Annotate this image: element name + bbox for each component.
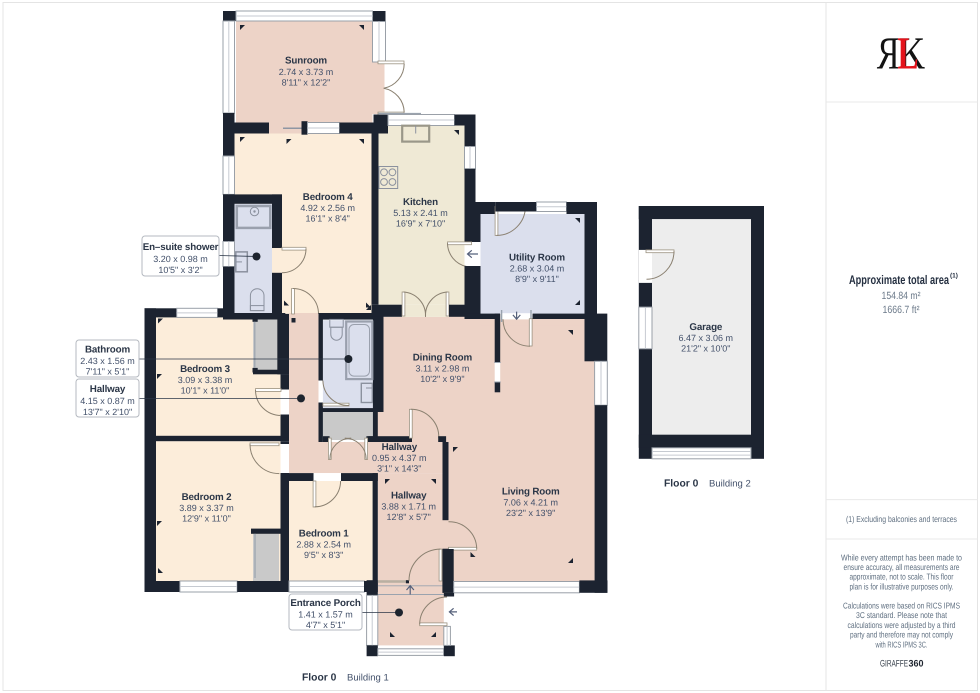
svg-text:Calculations were based on RIC: Calculations were based on RICS IPMS: [843, 601, 960, 611]
svg-text:ensure accuracy, all measureme: ensure accuracy, all measurements are: [844, 562, 960, 572]
svg-text:16'9" x 7'10": 16'9" x 7'10": [396, 219, 445, 229]
svg-text:GIRAFFE: GIRAFFE: [880, 659, 908, 670]
svg-text:Hallway: Hallway: [90, 384, 126, 395]
svg-text:Bedroom 3: Bedroom 3: [180, 364, 231, 375]
svg-text:0.95 x 4.37 m: 0.95 x 4.37 m: [372, 453, 427, 463]
svg-text:Garage: Garage: [689, 322, 723, 333]
svg-text:10'1" x 11'0": 10'1" x 11'0": [181, 386, 230, 396]
svg-text:Living Room: Living Room: [502, 487, 560, 498]
svg-text:Bedroom 1: Bedroom 1: [299, 528, 350, 539]
svg-text:4.92 x 2.56 m: 4.92 x 2.56 m: [300, 203, 355, 213]
svg-text:3.11 x 2.98 m: 3.11 x 2.98 m: [415, 364, 469, 374]
svg-text:Building 2: Building 2: [709, 479, 751, 490]
svg-text:Entrance Porch: Entrance Porch: [290, 598, 360, 609]
svg-text:2.43 x 1.56 m: 2.43 x 1.56 m: [80, 356, 135, 366]
svg-text:Bathroom: Bathroom: [85, 345, 131, 356]
svg-text:Hallway: Hallway: [391, 491, 427, 502]
svg-text:13'7" x 2'10": 13'7" x 2'10": [83, 407, 132, 417]
svg-text:12'8" x 5'7": 12'8" x 5'7": [387, 512, 431, 522]
svg-text:Building 1: Building 1: [347, 673, 389, 684]
svg-text:8'9" x 9'11": 8'9" x 9'11": [515, 274, 559, 284]
svg-text:7.06 x 4.21 m: 7.06 x 4.21 m: [503, 498, 558, 508]
svg-text:6.47 x 3.06 m: 6.47 x 3.06 m: [679, 333, 734, 343]
svg-text:While every attempt has been m: While every attempt has been made to: [841, 553, 962, 563]
svg-text:5.13 x 2.41 m: 5.13 x 2.41 m: [393, 208, 448, 218]
svg-text:(1) Excluding balconies and te: (1) Excluding balconies and terraces: [846, 514, 957, 524]
svg-text:En–suite shower: En–suite shower: [143, 242, 219, 253]
svg-text:4.15 x 0.87 m: 4.15 x 0.87 m: [80, 396, 135, 406]
svg-text:Utility Room: Utility Room: [509, 253, 565, 264]
svg-text:(1): (1): [950, 273, 958, 280]
svg-text:4'7" x 5'1": 4'7" x 5'1": [306, 620, 345, 630]
svg-text:3C standard. Please note that: 3C standard. Please note that: [856, 610, 948, 620]
svg-text:2.74 x 3.73 m: 2.74 x 3.73 m: [279, 67, 334, 77]
svg-text:360: 360: [909, 659, 924, 670]
svg-text:plan is for illustrative purpo: plan is for illustrative purposes only.: [850, 581, 954, 591]
svg-text:7'11" x 5'1": 7'11" x 5'1": [86, 367, 130, 377]
svg-text:approximate, not to scale. Thi: approximate, not to scale. This floor: [850, 572, 954, 582]
svg-text:16'1" x 8'4": 16'1" x 8'4": [306, 214, 350, 224]
svg-text:3.09 x 3.38 m: 3.09 x 3.38 m: [178, 375, 233, 385]
svg-text:10'2" x 9'9": 10'2" x 9'9": [420, 374, 464, 384]
svg-text:1666.7 ft²: 1666.7 ft²: [883, 304, 920, 316]
svg-text:Floor 0: Floor 0: [302, 673, 337, 684]
svg-text:with RICS IPMS 3C.: with RICS IPMS 3C.: [875, 639, 928, 649]
svg-text:3'1" x 14'3": 3'1" x 14'3": [377, 463, 421, 473]
svg-text:23'2" x 13'9": 23'2" x 13'9": [506, 508, 555, 518]
svg-text:Bedroom 2: Bedroom 2: [182, 492, 233, 503]
svg-text:2.68 x 3.04 m: 2.68 x 3.04 m: [510, 264, 565, 274]
svg-text:3.88 x 1.71 m: 3.88 x 1.71 m: [381, 502, 436, 512]
svg-text:calculations were adjusted by: calculations were adjusted by a third: [848, 620, 956, 630]
svg-text:21'2" x 10'0": 21'2" x 10'0": [681, 344, 730, 354]
svg-text:9'5" x 8'3": 9'5" x 8'3": [304, 550, 343, 560]
svg-text:Floor 0: Floor 0: [664, 479, 699, 490]
svg-text:12'9" x 11'0": 12'9" x 11'0": [182, 513, 231, 523]
svg-text:Kitchen: Kitchen: [403, 197, 438, 208]
svg-text:10'5" x 3'2": 10'5" x 3'2": [158, 265, 202, 275]
svg-text:Sunroom: Sunroom: [285, 56, 327, 67]
svg-text:1.41 x 1.57 m: 1.41 x 1.57 m: [298, 610, 353, 620]
svg-text:Hallway: Hallway: [382, 442, 418, 453]
svg-text:8'11" x 12'2": 8'11" x 12'2": [282, 77, 331, 87]
svg-text:154.84 m²: 154.84 m²: [882, 290, 921, 302]
svg-text:party and therefore may not co: party and therefore may not comply: [850, 630, 954, 640]
svg-text:2.88 x 2.54 m: 2.88 x 2.54 m: [296, 540, 351, 550]
svg-text:3.89 x 3.37 m: 3.89 x 3.37 m: [179, 503, 234, 513]
svg-text:Approximate total area: Approximate total area: [849, 273, 950, 287]
svg-text:3.20 x 0.98 m: 3.20 x 0.98 m: [153, 254, 208, 264]
svg-text:Dining Room: Dining Room: [413, 353, 473, 364]
svg-text:Bedroom 4: Bedroom 4: [303, 192, 354, 203]
